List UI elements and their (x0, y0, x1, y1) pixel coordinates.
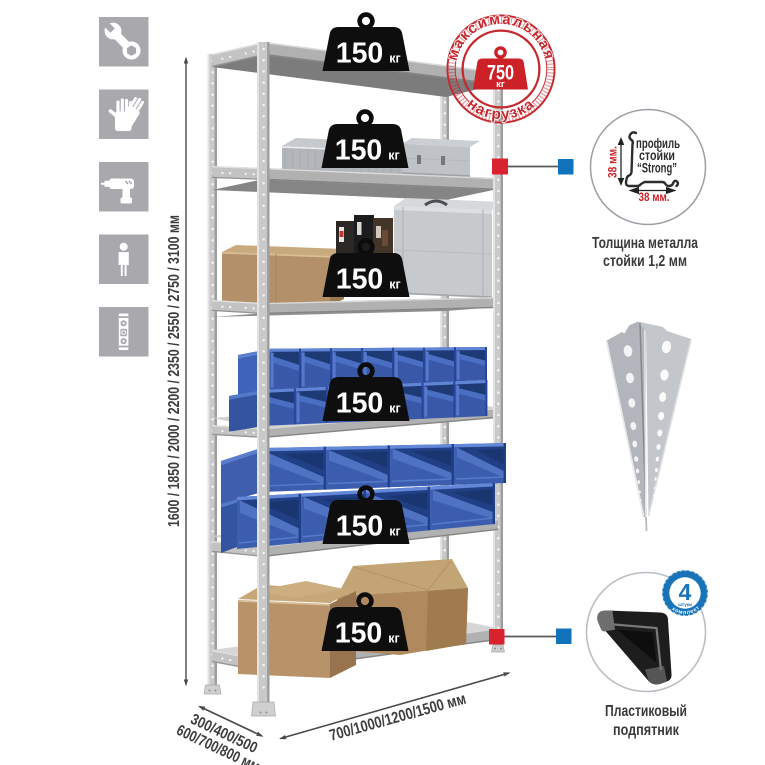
svg-text:1600 / 1850 / 2000 / 2200 / 23: 1600 / 1850 / 2000 / 2200 / 2350 / 2550 … (166, 215, 183, 527)
svg-text:150: 150 (336, 264, 384, 296)
svg-text:кг: кг (388, 149, 399, 163)
svg-text:38 мм.: 38 мм. (606, 146, 620, 178)
svg-text:150: 150 (335, 135, 383, 167)
svg-text:штуки: штуки (678, 602, 692, 607)
svg-text:кг: кг (388, 632, 399, 646)
svg-text:кг: кг (389, 402, 400, 416)
svg-text:150: 150 (336, 38, 384, 70)
svg-text:Пластиковый: Пластиковый (605, 703, 687, 720)
svg-text:кг: кг (496, 79, 505, 90)
svg-text:150: 150 (336, 388, 384, 420)
svg-text:подпятник: подпятник (613, 722, 680, 739)
svg-text:150: 150 (335, 618, 383, 650)
svg-text:кг: кг (389, 525, 400, 539)
svg-text:38 мм.: 38 мм. (639, 190, 670, 204)
svg-text:Толщина металла: Толщина металла (592, 235, 698, 252)
svg-text:кг: кг (389, 52, 400, 66)
svg-text:кг: кг (389, 278, 400, 292)
svg-text:150: 150 (336, 511, 384, 543)
svg-text:стойки 1,2 мм: стойки 1,2 мм (603, 253, 687, 270)
svg-text:“Strong”: “Strong” (637, 161, 677, 176)
